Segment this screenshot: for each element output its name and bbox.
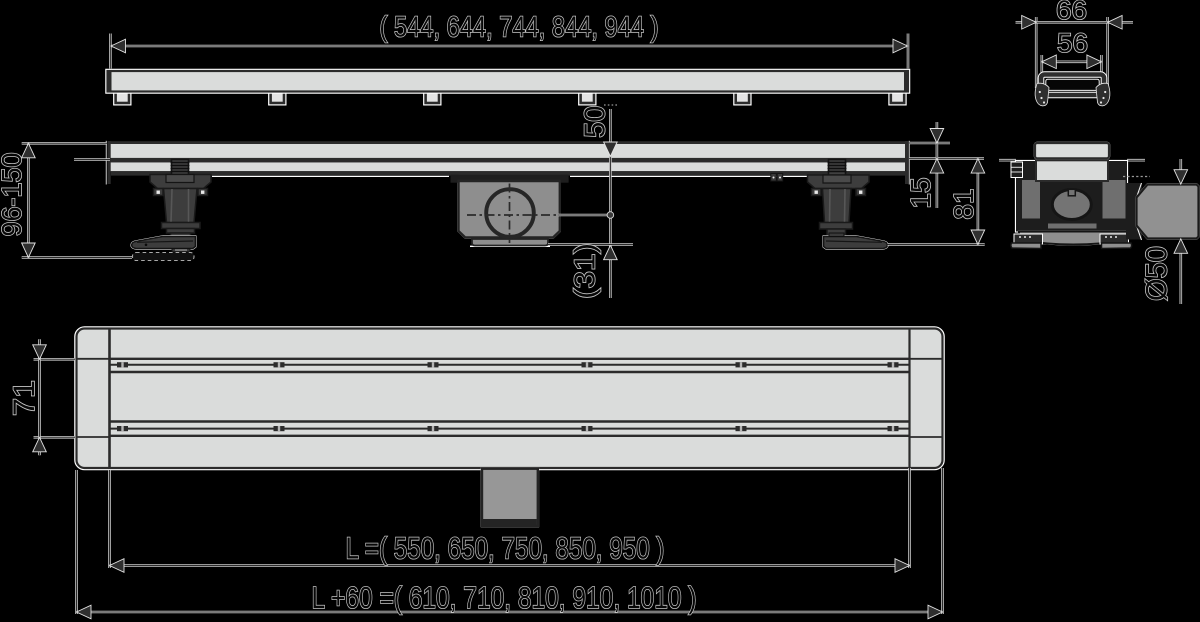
svg-text:56: 56 — [1057, 28, 1088, 58]
svg-text:L =( 550, 650, 750, 850, 950 ): L =( 550, 650, 750, 850, 950 ) — [346, 531, 665, 566]
svg-text:15: 15 — [905, 177, 936, 208]
svg-text:Ø50: Ø50 — [1141, 246, 1174, 301]
svg-text:L +60 =( 610, 710, 810, 910, 1: L +60 =( 610, 710, 810, 910, 1010 ) — [312, 580, 697, 615]
svg-text:81: 81 — [948, 188, 979, 219]
svg-text:(31): (31) — [569, 243, 601, 299]
svg-text:96-150: 96-150 — [0, 153, 27, 237]
svg-text:50: 50 — [579, 106, 611, 138]
svg-text:66: 66 — [1056, 0, 1087, 25]
svg-text:( 544, 644, 744, 844, 944 ): ( 544, 644, 744, 844, 944 ) — [380, 12, 659, 44]
svg-text:71: 71 — [8, 380, 41, 416]
